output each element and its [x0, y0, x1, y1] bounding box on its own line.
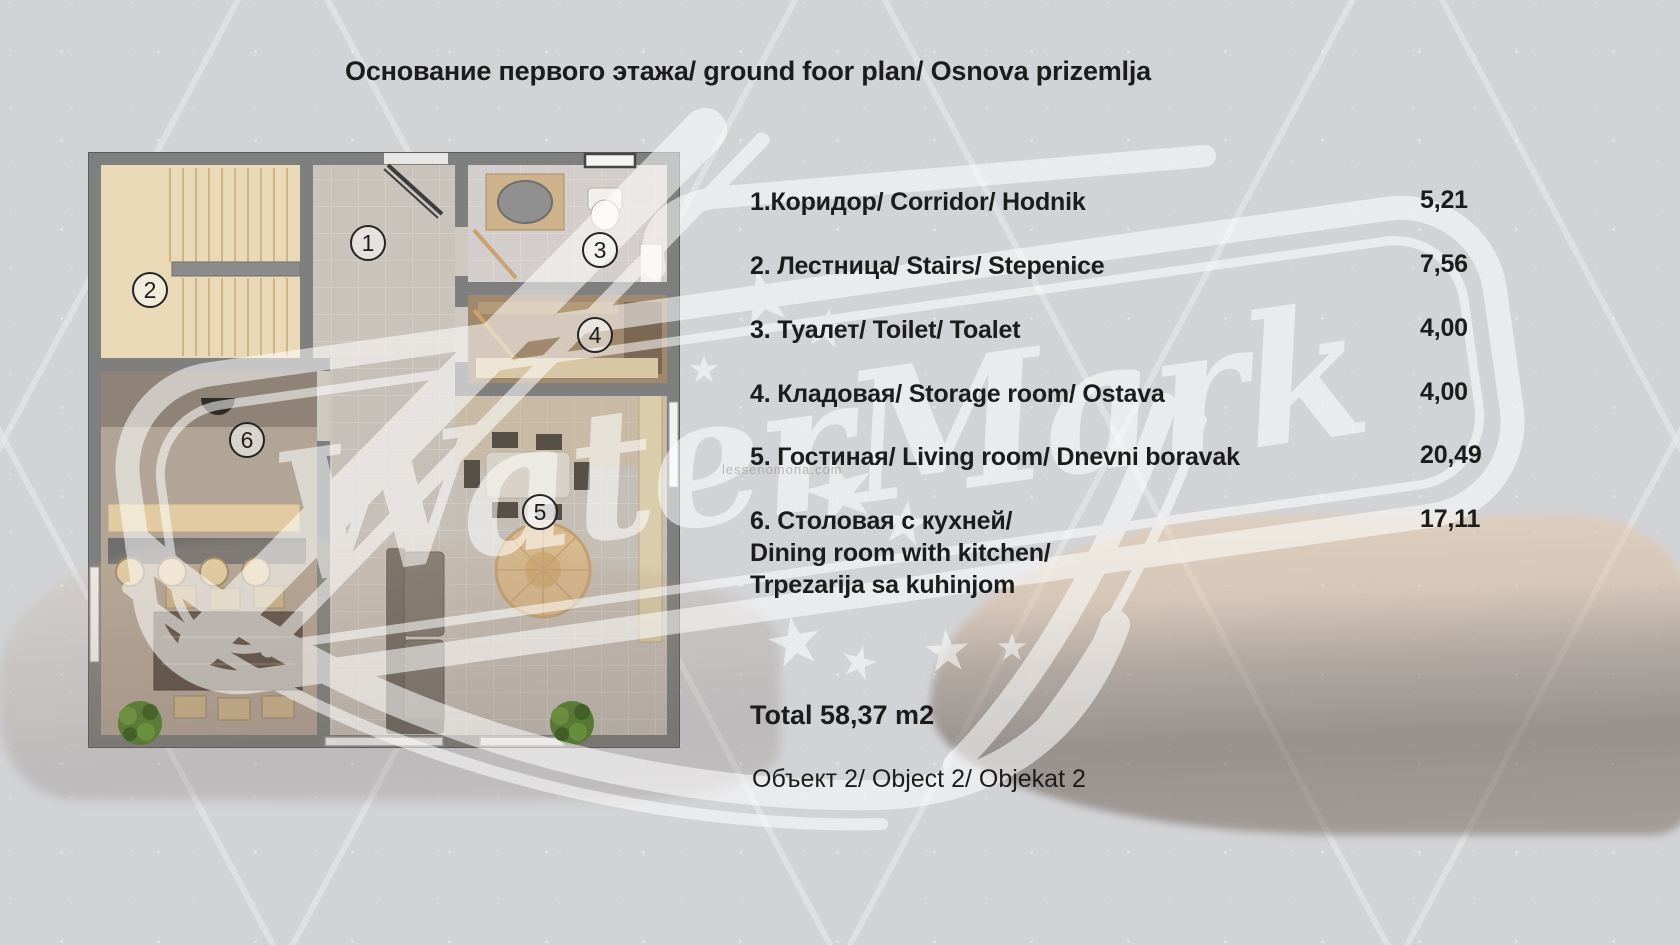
legend-area-value: 4,00 [1420, 378, 1468, 407]
toilet-bowl [588, 188, 622, 230]
room-toilet [468, 165, 667, 290]
legend-row-corridor: 1.Коридор/ Corridor/ Hodnik 5,21 [750, 186, 1680, 218]
dining-table [154, 612, 302, 690]
room-number-4: 4 [577, 317, 613, 353]
sofa [386, 548, 444, 734]
legend-row-toilet: 3. Туалет/ Toilet/ Toalet 4,00 [750, 314, 1680, 346]
storage-shelf-top [478, 302, 618, 314]
object-label: Объект 2/ Object 2/ Objekat 2 [752, 765, 1086, 794]
toilet-basin [498, 181, 552, 223]
watermark-url-text: lessenomona.com [722, 462, 843, 477]
dining-chairs-bottom [174, 696, 294, 720]
legend-row-dining-kitchen: 6. Столовая с кухней/ Dining room with k… [750, 505, 1680, 601]
total-area: Total 58,37 m2 [750, 700, 934, 731]
toilet-porch [585, 154, 635, 167]
legend-row-living: 5. Гостиная/ Living room/ Dnevni boravak… [750, 441, 1680, 473]
round-rug [496, 523, 590, 617]
legend-label: Trpezarija sa kuhinjom [750, 569, 1680, 601]
flyer-page: 1 2 3 4 5 6 WaterMark [0, 0, 1680, 945]
legend-label: 2. Лестница/ Stairs/ Stepenice [750, 250, 1680, 282]
legend-label: 3. Туалет/ Toilet/ Toalet [750, 314, 1680, 346]
legend-row-stairs: 2. Лестница/ Stairs/ Stepenice 7,56 [750, 250, 1680, 282]
room-number-3: 3 [582, 232, 618, 268]
stairs-landing-divider [172, 262, 300, 276]
legend-row-storage: 4. Кладовая/ Storage room/ Ostava 4,00 [750, 378, 1680, 410]
entry-door-gap [384, 153, 448, 164]
legend-area-value: 7,56 [1420, 250, 1468, 279]
legend-label: Dining room with kitchen/ [750, 537, 1680, 569]
plant-left [118, 701, 162, 745]
legend-label: 4. Кладовая/ Storage room/ Ostava [750, 378, 1680, 410]
legend-label: 1.Коридор/ Corridor/ Hodnik [750, 186, 1680, 218]
room-number-1: 1 [350, 225, 386, 261]
storage-shelf-band [476, 358, 658, 378]
legend-label: 6. Столовая с кухней/ [750, 505, 1680, 537]
right-window [669, 402, 678, 487]
plant-right [550, 701, 594, 745]
room-number-2: 2 [132, 272, 168, 308]
dining-chairs-top [166, 586, 284, 610]
sideboard [639, 392, 662, 642]
room-number-6: 6 [229, 422, 265, 458]
left-window [90, 567, 99, 662]
legend-label: 5. Гостиная/ Living room/ Dnevni boravak [750, 441, 1680, 473]
kitchen-counter [108, 504, 300, 532]
legend-area-value: 20,49 [1420, 441, 1482, 470]
room-stairs [101, 165, 300, 358]
room-kitchen-dining [101, 371, 317, 735]
page-title: Основание первого этажа/ ground foor pla… [258, 56, 1238, 87]
legend-area-value: 5,21 [1420, 186, 1468, 215]
legend-area-value: 4,00 [1420, 314, 1468, 343]
room-number-5: 5 [522, 494, 558, 530]
legend-area-value: 17,11 [1420, 505, 1480, 534]
